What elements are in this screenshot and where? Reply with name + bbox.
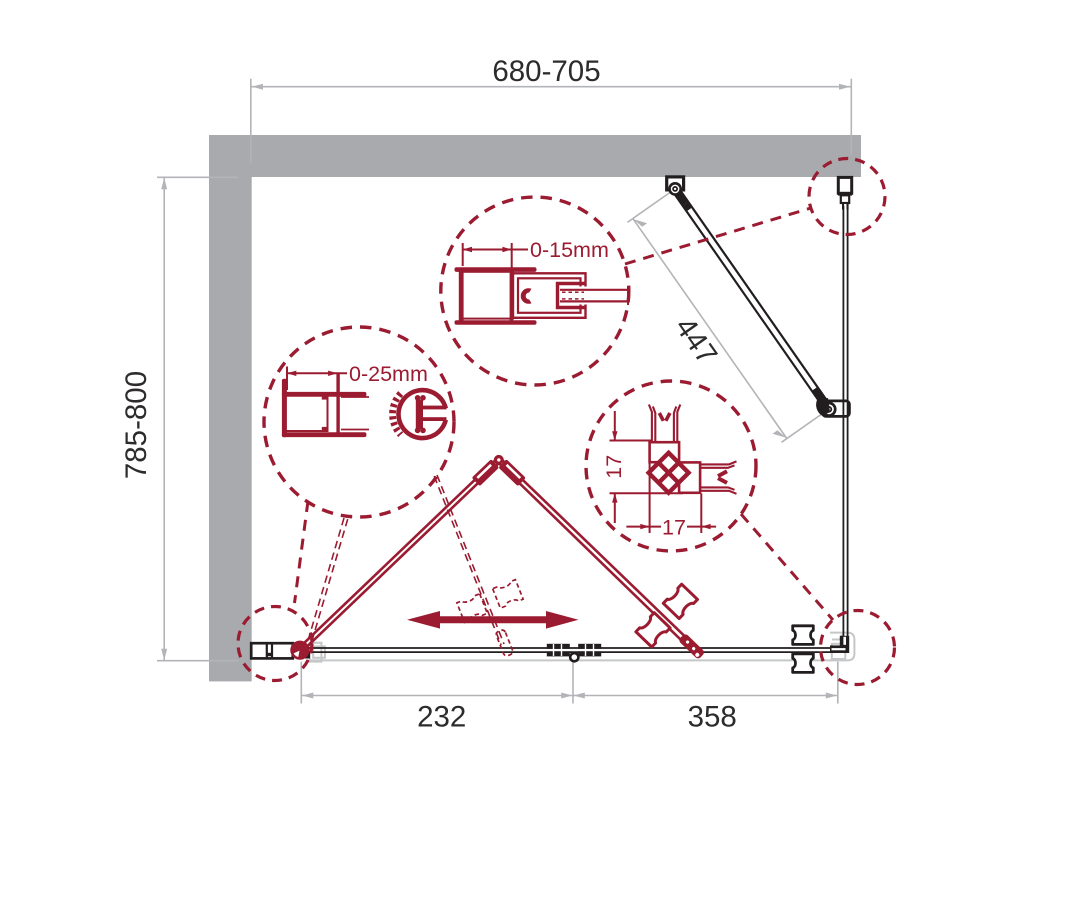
svg-text:17: 17 — [602, 455, 626, 479]
svg-text:358: 358 — [688, 701, 737, 734]
svg-text:17: 17 — [662, 516, 686, 540]
svg-text:785-800: 785-800 — [120, 371, 153, 479]
svg-text:680-705: 680-705 — [492, 55, 600, 88]
svg-text:0-15mm: 0-15mm — [530, 238, 609, 262]
svg-text:0-25mm: 0-25mm — [349, 362, 428, 386]
svg-text:232: 232 — [417, 701, 466, 734]
